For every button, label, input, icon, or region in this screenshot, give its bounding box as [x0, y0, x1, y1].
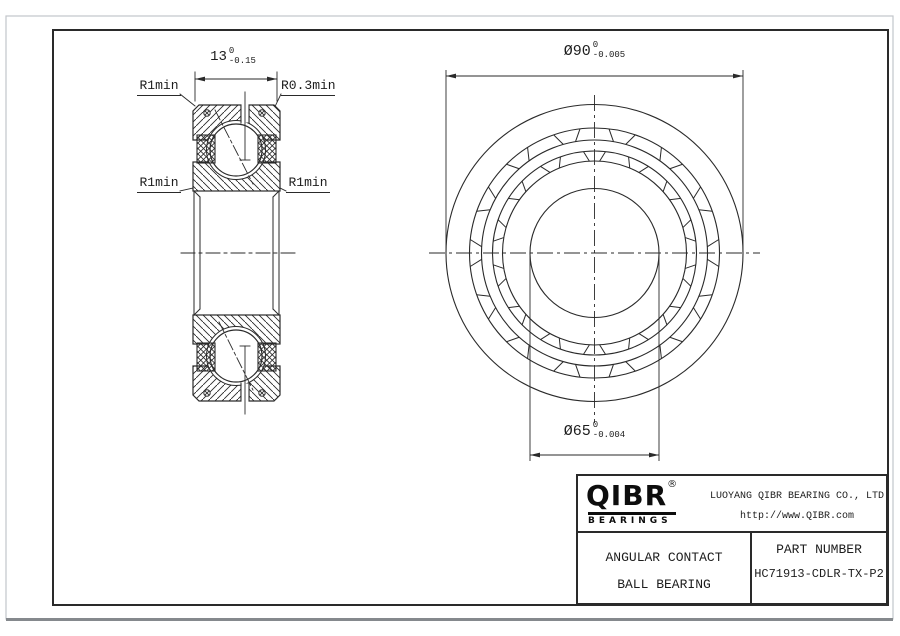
- product-description: ANGULAR CONTACT BALL BEARING: [578, 533, 752, 603]
- company-website: http://www.QIBR.com: [708, 507, 886, 527]
- arrow-right-icon: [649, 453, 659, 458]
- dimension-value: Ø65: [564, 424, 591, 439]
- part-number-value: HC71913-CDLR-TX-P2: [752, 567, 886, 581]
- cage-bottom-left: [197, 343, 215, 371]
- arrow-left-icon: [446, 74, 456, 79]
- dimension-value: Ø90: [564, 44, 591, 59]
- dimension-tolerance: 0 -0.15: [229, 46, 256, 67]
- width-dimension-lines: [195, 72, 277, 101]
- arrow-left-icon: [530, 453, 540, 458]
- product-line1: ANGULAR CONTACT: [578, 544, 750, 571]
- registered-trademark-icon: ®: [667, 479, 677, 490]
- arrow-right-icon: [267, 77, 277, 82]
- title-block-body: ANGULAR CONTACT BALL BEARING PART NUMBER…: [578, 533, 886, 603]
- arrow-left-icon: [195, 77, 205, 82]
- dimension-tolerance: 0 -0.005: [593, 40, 625, 61]
- fillet-label-mid-left: R1min: [137, 176, 181, 193]
- part-number-label: PART NUMBER: [752, 533, 886, 557]
- title-block: QIBR® BEARINGS LUOYANG QIBR BEARING CO.,…: [576, 474, 888, 605]
- brand-logo: QIBR® BEARINGS: [578, 476, 708, 531]
- part-number-cell: PART NUMBER HC71913-CDLR-TX-P2: [752, 533, 886, 603]
- logo-text: QIBR: [586, 479, 667, 512]
- dimension-value: 13: [210, 50, 227, 64]
- company-name: LUOYANG QIBR BEARING CO., LTD: [708, 487, 886, 507]
- fillet-label-mid-right: R1min: [286, 176, 330, 193]
- dimension-tolerance: 0 -0.004: [593, 420, 625, 441]
- ball-bottom: [210, 330, 262, 382]
- title-block-header: QIBR® BEARINGS LUOYANG QIBR BEARING CO.,…: [578, 476, 886, 533]
- logo-subtext: BEARINGS: [588, 516, 708, 526]
- logo-rule: [588, 512, 676, 515]
- drawing-sheet: 13 0 -0.15 Ø90 0 -0.005 Ø65 0 -0.004 R1m…: [0, 0, 900, 636]
- company-info: LUOYANG QIBR BEARING CO., LTD http://www…: [708, 476, 886, 531]
- width-dimension: 13 0 -0.15: [192, 47, 274, 68]
- front-view: [429, 70, 760, 461]
- cross-section-view: [180, 72, 296, 414]
- outer-diameter-dimension: Ø90 0 -0.005: [446, 41, 743, 62]
- cage-top-right: [258, 135, 276, 163]
- fillet-label-top-left: R1min: [137, 79, 181, 96]
- fillet-label-top-right: R0.3min: [281, 79, 335, 96]
- arrow-right-icon: [733, 74, 743, 79]
- product-line2: BALL BEARING: [578, 571, 750, 598]
- cage-bottom-right: [258, 343, 276, 371]
- bore-diameter-dimension: Ø65 0 -0.004: [530, 421, 659, 442]
- cage-top-left: [197, 135, 215, 163]
